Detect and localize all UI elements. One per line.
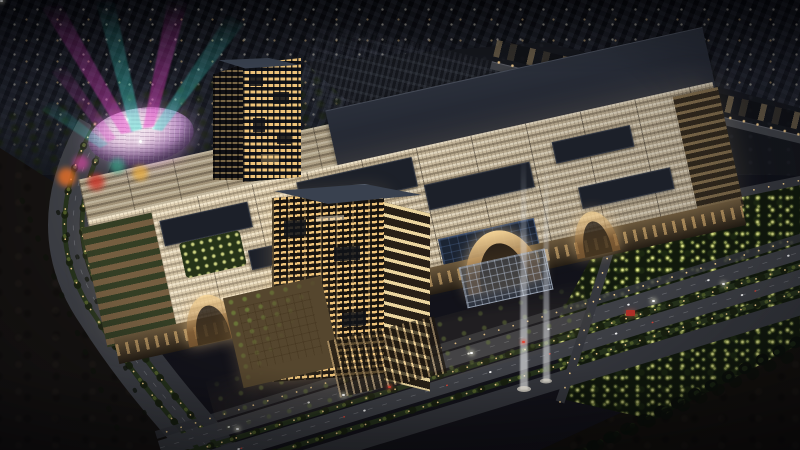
car-taillights xyxy=(522,341,525,343)
office-tower xyxy=(213,50,301,178)
car-headlights xyxy=(0,0,3,2)
dark-window-patch xyxy=(249,76,263,86)
entrance-arch-opening xyxy=(578,218,613,258)
office-tower-west-face xyxy=(213,64,243,180)
dark-window-patch xyxy=(342,311,366,327)
office-tower-south-face xyxy=(243,58,301,182)
car-headlights xyxy=(342,394,345,396)
car-headlights xyxy=(722,283,725,285)
car-headlights xyxy=(652,300,655,302)
bright-window-patch xyxy=(261,154,279,164)
dark-window-patch xyxy=(253,118,265,132)
hotel-sign xyxy=(316,215,344,222)
car-headlights xyxy=(236,428,239,430)
car-headlights xyxy=(470,352,473,354)
car-taillights xyxy=(388,386,391,388)
dark-window-patch xyxy=(273,92,289,104)
dark-window-patch xyxy=(284,220,306,238)
dark-window-patch xyxy=(334,246,360,262)
dome-sparkle xyxy=(126,118,129,121)
red-pavilion xyxy=(626,310,635,316)
night-aerial-render xyxy=(0,0,800,450)
dark-window-patch xyxy=(277,134,291,144)
